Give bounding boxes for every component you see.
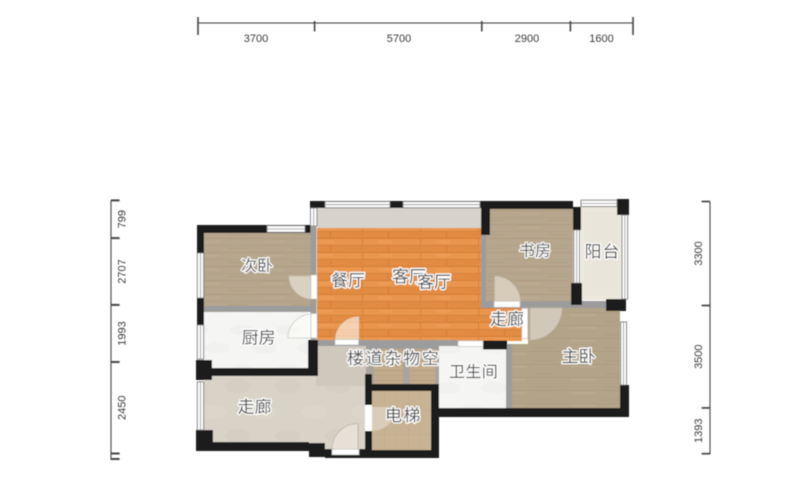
svg-text:5700: 5700 bbox=[387, 33, 411, 45]
svg-text:1993: 1993 bbox=[117, 321, 129, 345]
svg-text:3700: 3700 bbox=[244, 33, 268, 45]
svg-text:3300: 3300 bbox=[693, 241, 705, 265]
svg-text:2450: 2450 bbox=[117, 396, 129, 420]
svg-text:1600: 1600 bbox=[589, 33, 613, 45]
svg-text:799: 799 bbox=[117, 210, 129, 228]
svg-text:1393: 1393 bbox=[693, 419, 705, 443]
svg-text:2707: 2707 bbox=[117, 259, 129, 283]
svg-text:3500: 3500 bbox=[693, 344, 705, 368]
svg-text:2900: 2900 bbox=[515, 33, 539, 45]
